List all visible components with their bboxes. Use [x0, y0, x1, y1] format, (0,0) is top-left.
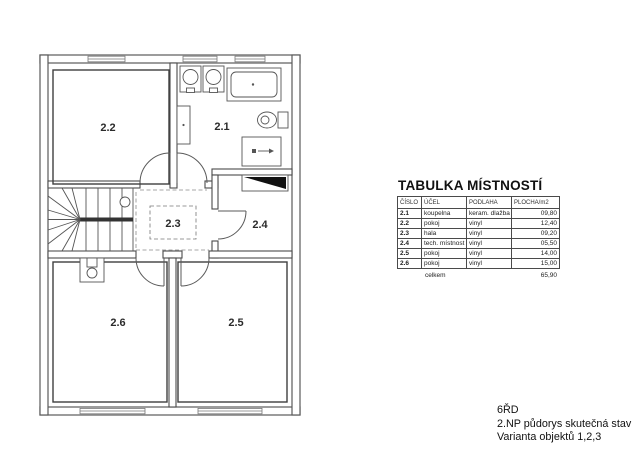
- title-block-project: 6ŘD: [497, 404, 631, 418]
- bathtub-icon: [227, 68, 281, 101]
- table-total-row: celkem 65,90: [397, 269, 560, 279]
- cell-floor: keram. dlažba: [467, 209, 512, 219]
- cell-number: 2.3: [398, 229, 422, 239]
- vent-shaft-icon: [242, 175, 288, 191]
- room-label-2-2: 2.2: [100, 122, 115, 134]
- room-table-block: TABULKA MÍSTNOSTÍ ČÍSLO ÚČEL PODLAHA PLO…: [397, 178, 560, 279]
- interior-walls: [48, 63, 292, 407]
- table-row: 2.2 pokoj vinyl 12,40: [398, 219, 560, 229]
- cell-number: 2.1: [398, 209, 422, 219]
- title-block-drawing: 2.NP půdorys skutečná stav: [497, 418, 631, 432]
- washbasin-icon: [180, 66, 201, 93]
- table-row: 2.5 pokoj vinyl 14,00: [398, 249, 560, 259]
- cell-area: 14,00: [512, 249, 560, 259]
- col-header-cislo: ČÍSLO: [398, 197, 422, 209]
- table-header-row: ČÍSLO ÚČEL PODLAHA PLOCHA/m2: [398, 197, 560, 209]
- room-label-2-3: 2.3: [165, 218, 180, 230]
- col-header-ucel: ÚČEL: [422, 197, 467, 209]
- cell-purpose: pokoj: [422, 219, 467, 229]
- cell-purpose: pokoj: [422, 249, 467, 259]
- col-header-podlaha: PODLAHA: [467, 197, 512, 209]
- cabinet-icon: [177, 106, 190, 144]
- cell-number: 2.4: [398, 239, 422, 249]
- staircase: [48, 188, 133, 251]
- drawing-sheet: 2.2 2.1 2.3 2.4 2.5 2.6 TABULKA MÍSTNOST…: [0, 0, 632, 468]
- cell-purpose: tech. místnost: [422, 239, 467, 249]
- cell-number: 2.5: [398, 249, 422, 259]
- table-row: 2.1 koupelna keram. dlažba 09,80: [398, 209, 560, 219]
- cell-floor: vinyl: [467, 239, 512, 249]
- cell-area: 09,20: [512, 229, 560, 239]
- title-block: 6ŘD 2.NP půdorys skutečná stav Varianta …: [497, 404, 631, 445]
- door-room-2-1: [177, 153, 207, 183]
- room-label-2-4: 2.4: [252, 219, 268, 231]
- col-header-plocha: PLOCHA/m2: [512, 197, 560, 209]
- cell-purpose: pokoj: [422, 259, 467, 269]
- room-label-2-1: 2.1: [214, 121, 229, 133]
- cell-purpose: hala: [422, 229, 467, 239]
- chimney-icon: [80, 258, 104, 282]
- table-row: 2.6 pokoj vinyl 15,00: [398, 259, 560, 269]
- cell-area: 05,50: [512, 239, 560, 249]
- room-table-title: TABULKA MÍSTNOSTÍ: [398, 178, 560, 193]
- room-table: ČÍSLO ÚČEL PODLAHA PLOCHA/m2 2.1 koupeln…: [397, 196, 560, 269]
- title-block-variant: Varianta objektů 1,2,3: [497, 431, 631, 445]
- cell-floor: vinyl: [467, 219, 512, 229]
- cell-area: 12,40: [512, 219, 560, 229]
- cell-floor: vinyl: [467, 249, 512, 259]
- total-value: 65,90: [541, 272, 557, 279]
- room-label-2-6: 2.6: [110, 317, 125, 329]
- total-label: celkem: [425, 272, 446, 279]
- washing-machine-icon: [242, 137, 281, 166]
- door-room-2-2: [140, 153, 170, 183]
- cell-area: 09,80: [512, 209, 560, 219]
- cell-area: 15,00: [512, 259, 560, 269]
- cell-number: 2.6: [398, 259, 422, 269]
- table-row: 2.3 hala vinyl 09,20: [398, 229, 560, 239]
- cell-number: 2.2: [398, 219, 422, 229]
- door-room-2-4: [218, 211, 246, 239]
- floor-plan: 2.2 2.1 2.3 2.4 2.5 2.6: [0, 0, 340, 468]
- cell-floor: vinyl: [467, 259, 512, 269]
- washbasin-icon: [203, 66, 224, 93]
- table-row: 2.4 tech. místnost vinyl 05,50: [398, 239, 560, 249]
- toilet-icon: [258, 112, 289, 128]
- bathroom-fixtures: [177, 66, 288, 166]
- room-label-2-5: 2.5: [228, 317, 243, 329]
- cell-floor: vinyl: [467, 229, 512, 239]
- cell-purpose: koupelna: [422, 209, 467, 219]
